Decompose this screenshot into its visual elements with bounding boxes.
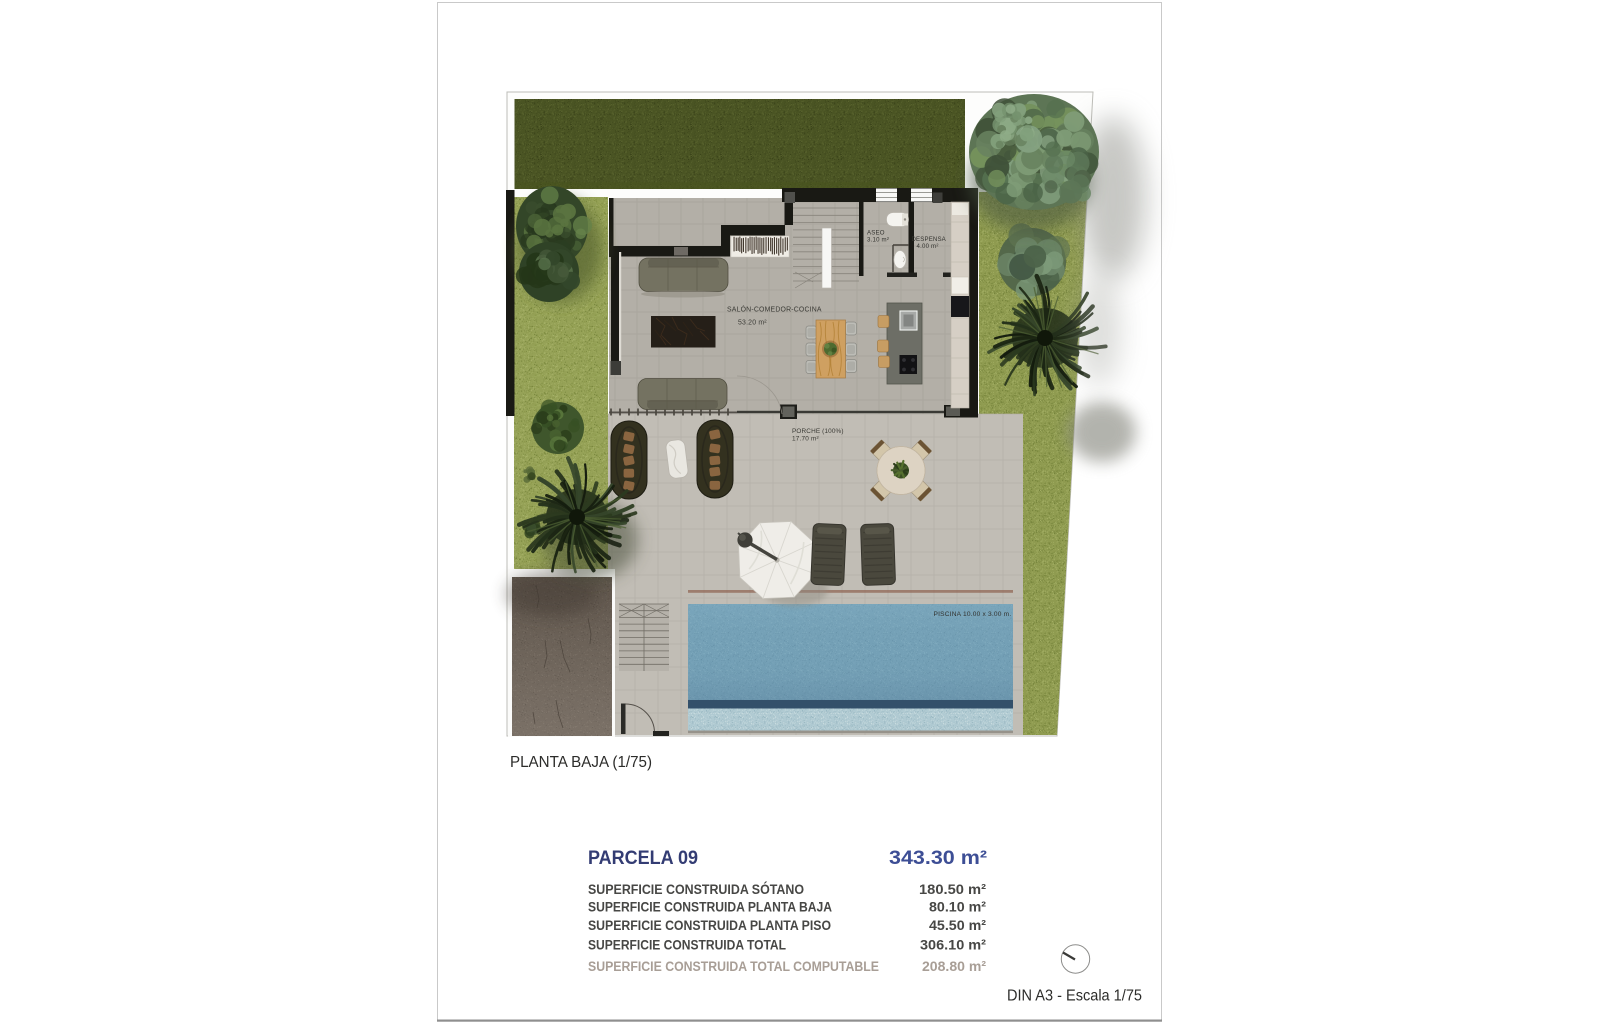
- svg-text:ASEO: ASEO: [867, 230, 885, 237]
- svg-text:DESPENSA: DESPENSA: [912, 236, 947, 243]
- svg-text:3.10 m²: 3.10 m²: [867, 237, 889, 244]
- svg-text:53.20 m²: 53.20 m²: [738, 320, 767, 327]
- svg-text:SUPERFICIE CONSTRUIDA PLANTA B: SUPERFICIE CONSTRUIDA PLANTA BAJA: [588, 900, 832, 916]
- svg-text:306.10 m²: 306.10 m²: [920, 938, 986, 954]
- svg-text:343.30 m²: 343.30 m²: [889, 848, 987, 869]
- svg-text:SUPERFICIE CONSTRUIDA PLANTA P: SUPERFICIE CONSTRUIDA PLANTA PISO: [588, 918, 831, 934]
- svg-text:45.50 m²: 45.50 m²: [929, 918, 986, 934]
- svg-text:17.70 m²: 17.70 m²: [792, 436, 819, 443]
- svg-text:4.00 m²: 4.00 m²: [917, 243, 939, 250]
- svg-text:80.10 m²: 80.10 m²: [929, 900, 986, 916]
- svg-text:PORCHE (100%): PORCHE (100%): [792, 428, 844, 435]
- svg-text:SUPERFICIE CONSTRUIDA TOTAL: SUPERFICIE CONSTRUIDA TOTAL: [588, 938, 786, 954]
- svg-text:PLANTA BAJA (1/75): PLANTA BAJA (1/75): [510, 754, 652, 771]
- svg-text:PISCINA 10.00 x 3.00 m.: PISCINA 10.00 x 3.00 m.: [934, 611, 1012, 618]
- svg-text:208.80 m²: 208.80 m²: [922, 959, 986, 975]
- svg-text:SUPERFICIE CONSTRUIDA SÓTANO: SUPERFICIE CONSTRUIDA SÓTANO: [588, 880, 804, 898]
- svg-text:SALÓN-COMEDOR-COCINA: SALÓN-COMEDOR-COCINA: [727, 305, 822, 314]
- svg-text:180.50 m²: 180.50 m²: [919, 882, 986, 898]
- svg-text:DIN A3 - Escala 1/75: DIN A3 - Escala 1/75: [1007, 988, 1142, 1005]
- svg-text:PARCELA 09: PARCELA 09: [588, 848, 698, 869]
- svg-text:SUPERFICIE CONSTRUIDA TOTAL CO: SUPERFICIE CONSTRUIDA TOTAL COMPUTABLE: [588, 959, 879, 975]
